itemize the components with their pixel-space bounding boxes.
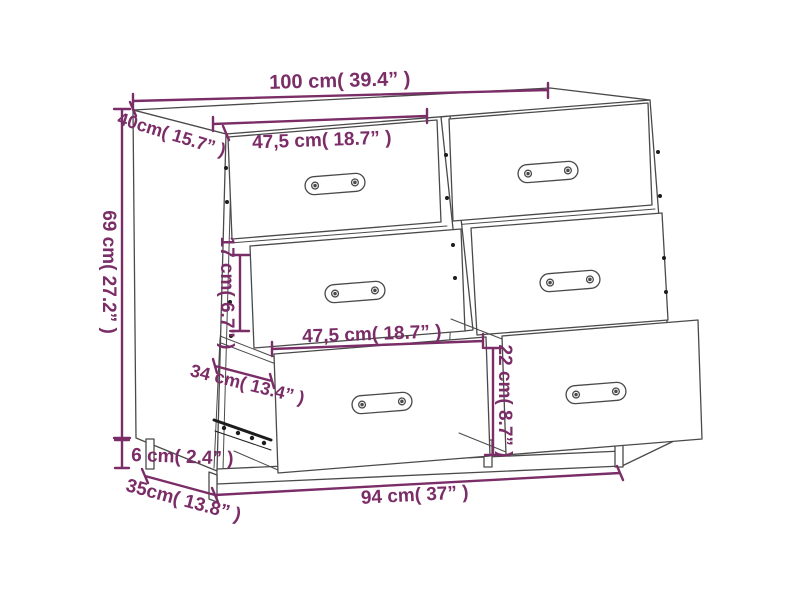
label-height-side: 69 cm( 27.2” ) [98,210,119,334]
handle-icon [565,382,626,405]
handle-icon [517,161,578,184]
handle-icon [351,392,412,415]
handle-icon [304,173,365,196]
sideboard-dimension-diagram: 100 cm( 39.4” ) 40cm( 15.7” ) 69 cm( 27.… [0,0,800,600]
dim-line-leg-height [115,440,129,468]
handle-icon [324,281,385,304]
label-width-bottom: 94 cm( 37” ) [360,482,469,509]
label-drawer-front-height: 22 cm( 8.7” ) [494,345,515,458]
label-width-top: 100 cm( 39.4” ) [269,68,411,94]
handle-icon [539,270,600,293]
drawer-front-top-right [449,103,652,221]
dimension-diagram-page: 100 cm( 39.4” ) 40cm( 15.7” ) 69 cm( 27.… [0,0,800,600]
label-inner-gap-height: 17 cm( 6.7” ) [216,237,237,350]
cabinet-side-panel [133,110,226,471]
label-leg-height: 6 cm( 2.4” ) [131,445,234,470]
slide-rail-left [214,420,271,440]
